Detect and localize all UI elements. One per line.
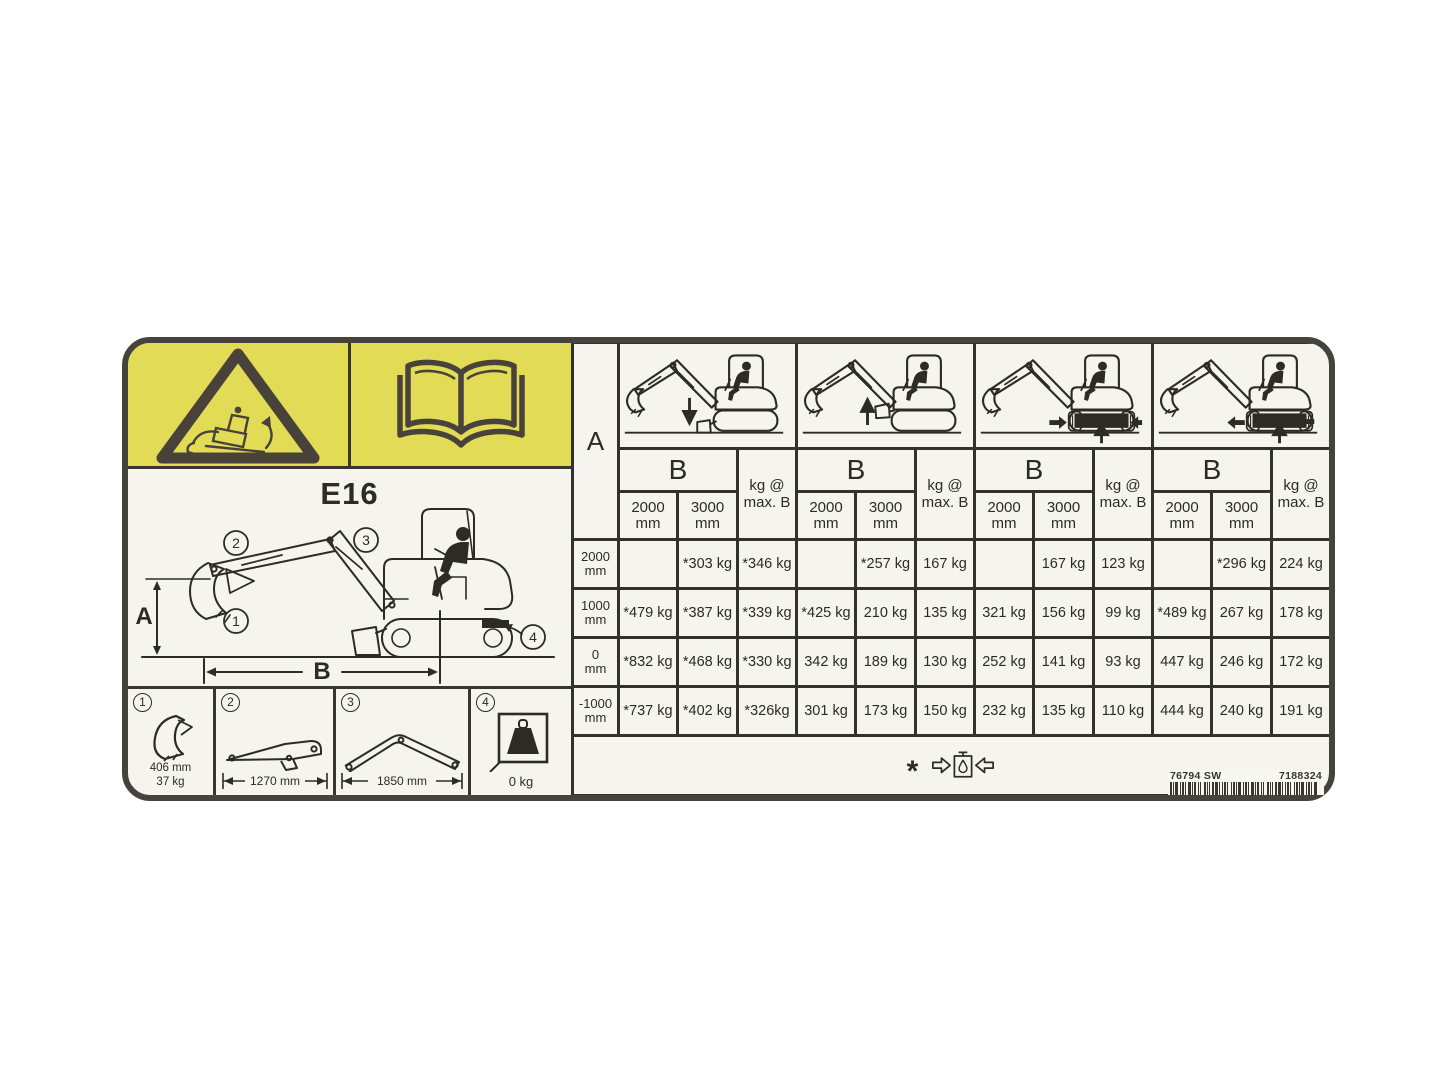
header-kg-max: kg @ max. B xyxy=(916,449,975,540)
header-reach-3000: 3000 mm xyxy=(1034,492,1094,540)
part-number-block: 76794 SW 7188324 xyxy=(1168,770,1324,795)
config-pictogram-excavator-undercarriage-extended xyxy=(1153,343,1331,449)
header-b: B xyxy=(619,449,738,492)
operator-manual-book-icon xyxy=(385,353,537,457)
capacity-cell: *326kg xyxy=(738,687,797,736)
header-reach-2000: 2000 mm xyxy=(797,492,856,540)
capacity-cell: *330 kg xyxy=(738,638,797,687)
callout-2: 2 xyxy=(232,535,240,551)
header-b: B xyxy=(797,449,916,492)
capacity-cell xyxy=(975,540,1034,589)
capacity-cell: *468 kg xyxy=(678,638,738,687)
capacity-cell xyxy=(797,540,856,589)
header-reach-2000: 2000 mm xyxy=(975,492,1034,540)
machine-dimension-diagram: 2 3 1 4 B A xyxy=(130,507,568,693)
capacity-cell: 141 kg xyxy=(1034,638,1094,687)
counterweight-weight: 0 kg xyxy=(509,774,534,790)
left-panel: E16 xyxy=(128,343,571,795)
capacity-cell: 178 kg xyxy=(1272,589,1331,638)
capacity-cell: 110 kg xyxy=(1094,687,1153,736)
capacity-cell: 99 kg xyxy=(1094,589,1153,638)
capacity-cell: *737 kg xyxy=(619,687,678,736)
header-reach-3000: 3000 mm xyxy=(856,492,916,540)
capacity-cell: 173 kg xyxy=(856,687,916,736)
capacity-cell: *832 kg xyxy=(619,638,678,687)
header-b: B xyxy=(1153,449,1272,492)
capacity-cell: 135 kg xyxy=(916,589,975,638)
boom-icon xyxy=(339,728,465,772)
capacity-cell: *425 kg xyxy=(797,589,856,638)
capacity-cell: 232 kg xyxy=(975,687,1034,736)
capacity-table-panel: A B xyxy=(571,341,1331,797)
capacity-cell: 252 kg xyxy=(975,638,1034,687)
read-manual-cell xyxy=(348,343,571,466)
capacity-table: A B xyxy=(571,341,1332,797)
dim-a-label: A xyxy=(135,603,152,630)
capacity-cell: 130 kg xyxy=(916,638,975,687)
row-header-height: 2000 mm xyxy=(573,540,619,589)
capacity-cell: *346 kg xyxy=(738,540,797,589)
capacity-cell: *387 kg xyxy=(678,589,738,638)
capacity-cell: 342 kg xyxy=(797,638,856,687)
row-header-height: -1000 mm xyxy=(573,687,619,736)
arm-length: 1270 mm xyxy=(249,774,299,788)
capacity-cell: 123 kg xyxy=(1094,540,1153,589)
lift-capacity-decal: E16 xyxy=(122,337,1335,801)
capacity-cell: 240 kg xyxy=(1212,687,1272,736)
capacity-cell: 191 kg xyxy=(1272,687,1331,736)
capacity-cell: 444 kg xyxy=(1153,687,1212,736)
part-number-left: 76794 SW xyxy=(1170,770,1221,782)
capacity-cell: 172 kg xyxy=(1272,638,1331,687)
capacity-cell: 167 kg xyxy=(1034,540,1094,589)
header-reach-2000: 2000 mm xyxy=(1153,492,1212,540)
row-header-height: 1000 mm xyxy=(573,589,619,638)
capacity-row: 2000 mm*303 kg*346 kg*257 kg167 kg167 kg… xyxy=(573,540,1331,589)
capacity-row: -1000 mm*737 kg*402 kg*326kg301 kg173 kg… xyxy=(573,687,1331,736)
config-pictogram-excavator-undercarriage-retracted xyxy=(975,343,1153,449)
capacity-cell: *489 kg xyxy=(1153,589,1212,638)
capacity-cell: 210 kg xyxy=(856,589,916,638)
capacity-row: 0 mm*832 kg*468 kg*330 kg342 kg189 kg130… xyxy=(573,638,1331,687)
config-pictogram-excavator-blade-up xyxy=(797,343,975,449)
capacity-cell: *303 kg xyxy=(678,540,738,589)
capacity-cell: *296 kg xyxy=(1212,540,1272,589)
capacity-cell: *479 kg xyxy=(619,589,678,638)
hydraulic-limit-icon xyxy=(930,744,996,788)
capacity-cell: 224 kg xyxy=(1272,540,1331,589)
capacity-cell xyxy=(1153,540,1212,589)
capacity-row: 1000 mm*479 kg*387 kg*339 kg*425 kg210 k… xyxy=(573,589,1331,638)
part-box-boom: 3 1850 mm xyxy=(333,689,468,795)
capacity-cell: 150 kg xyxy=(916,687,975,736)
capacity-cell: 167 kg xyxy=(916,540,975,589)
header-reach-3000: 3000 mm xyxy=(678,492,738,540)
capacity-cell: *339 kg xyxy=(738,589,797,638)
callout-1: 1 xyxy=(232,613,240,629)
capacity-cell: 93 kg xyxy=(1094,638,1153,687)
part-callout-2: 2 xyxy=(221,693,240,712)
arm-icon xyxy=(223,730,327,772)
callout-3: 3 xyxy=(362,532,370,548)
capacity-cell: 189 kg xyxy=(856,638,916,687)
counterweight-icon xyxy=(488,710,554,772)
boom-dim-arrow: 1850 mm xyxy=(340,772,464,790)
part-number-right: 7188324 xyxy=(1279,770,1322,782)
parts-legend: 1 406 mm 37 kg 2 xyxy=(128,686,571,795)
capacity-cell: 156 kg xyxy=(1034,589,1094,638)
part-box-arm: 2 1270 mm xyxy=(213,689,333,795)
part-callout-4: 4 xyxy=(476,693,495,712)
part-box-bucket: 1 406 mm 37 kg xyxy=(128,689,213,795)
bucket-width: 406 mm xyxy=(150,762,192,776)
capacity-cell: 321 kg xyxy=(975,589,1034,638)
config-pictogram-excavator-blade-down xyxy=(619,343,797,449)
part-callout-1: 1 xyxy=(133,693,152,712)
capacity-cell xyxy=(619,540,678,589)
bucket-icon xyxy=(142,710,200,762)
barcode xyxy=(1170,782,1318,795)
capacity-cell: 447 kg xyxy=(1153,638,1212,687)
warning-banner xyxy=(128,343,571,469)
capacity-cell: 301 kg xyxy=(797,687,856,736)
part-callout-3: 3 xyxy=(341,693,360,712)
header-reach-3000: 3000 mm xyxy=(1212,492,1272,540)
bucket-weight: 37 kg xyxy=(156,776,184,790)
callout-4: 4 xyxy=(529,629,537,645)
header-reach-2000: 2000 mm xyxy=(619,492,678,540)
capacity-cell: 267 kg xyxy=(1212,589,1272,638)
header-kg-max: kg @ max. B xyxy=(1094,449,1153,540)
boom-length: 1850 mm xyxy=(377,774,427,788)
capacity-cell: 135 kg xyxy=(1034,687,1094,736)
col-header-a: A xyxy=(573,343,619,540)
header-b: B xyxy=(975,449,1094,492)
capacity-cell: *402 kg xyxy=(678,687,738,736)
b-header-row: Bkg @ max. BBkg @ max. BBkg @ max. BBkg … xyxy=(573,449,1331,492)
part-box-counterweight: 4 0 kg xyxy=(468,689,571,795)
row-header-height: 0 mm xyxy=(573,638,619,687)
arm-dim-arrow: 1270 mm xyxy=(221,772,329,790)
capacity-cell: *257 kg xyxy=(856,540,916,589)
capacity-cell: 246 kg xyxy=(1212,638,1272,687)
pictogram-row: A xyxy=(573,343,1331,449)
dim-b-label: B xyxy=(313,658,330,685)
header-kg-max: kg @ max. B xyxy=(738,449,797,540)
header-kg-max: kg @ max. B xyxy=(1272,449,1331,540)
warning-triangle-icon xyxy=(154,346,322,464)
tipover-warning-cell xyxy=(128,343,348,466)
